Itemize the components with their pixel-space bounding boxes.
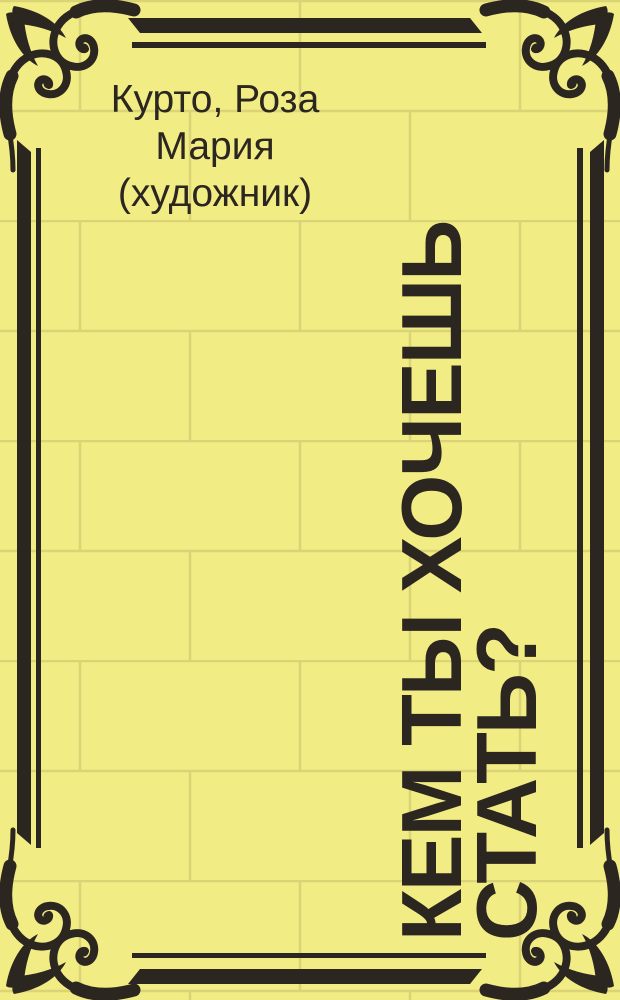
frame-border-right-thick <box>590 140 604 845</box>
corner-flourish-top-right <box>486 6 614 170</box>
title-line-2: СТАТЬ? <box>470 181 545 941</box>
frame-border-bottom-thin <box>132 953 486 958</box>
frame-border-left-thin <box>36 148 41 848</box>
frame-border-bottom-thick <box>128 969 482 984</box>
author-name: Курто, Роза Мария (художник) <box>50 76 380 217</box>
author-line-2: Мария <box>50 123 380 170</box>
book-cover: Курто, Роза Мария (художник) КЕМ ТЫ ХОЧЕ… <box>0 0 620 1000</box>
title-line-1: КЕМ ТЫ ХОЧЕШЬ <box>395 181 470 941</box>
frame-border-left-thick <box>17 140 31 845</box>
frame-border-top-thick <box>128 18 482 33</box>
author-line-3: (художник) <box>50 170 380 217</box>
author-line-1: Курто, Роза <box>50 76 380 123</box>
corner-flourish-bottom-left <box>6 830 134 994</box>
book-title: КЕМ ТЫ ХОЧЕШЬ СТАТЬ? <box>395 181 545 941</box>
frame-border-top-thin <box>132 42 486 48</box>
frame-border-right-thin <box>577 148 583 848</box>
